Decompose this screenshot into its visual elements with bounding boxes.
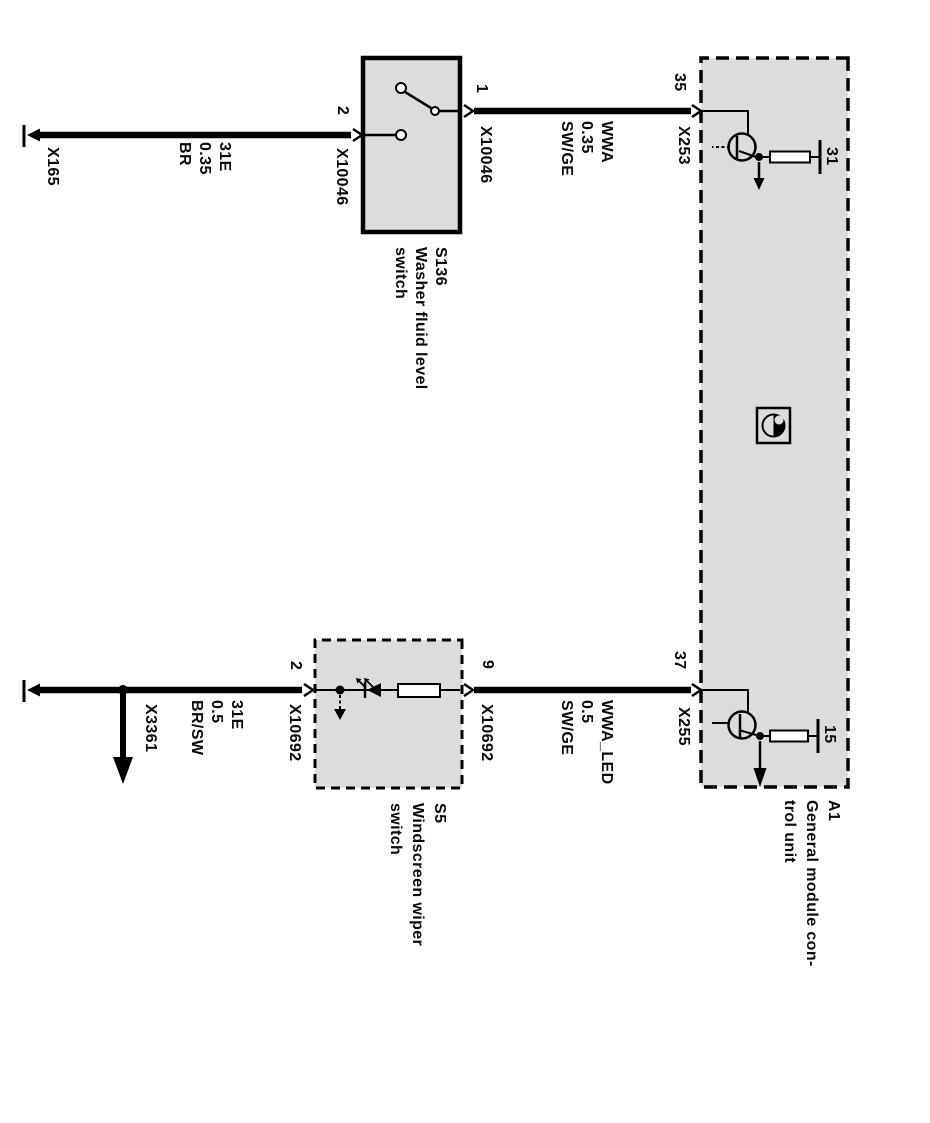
connector-label-x10692-upper: X10692 [477, 704, 495, 762]
connector-s5-pin2-icon [304, 684, 313, 696]
wire-circuit: 31E [214, 142, 234, 175]
ground-label-x165: X165 [43, 147, 61, 186]
component-ref: S5 [428, 803, 450, 946]
x3361-branch-arrow-icon [113, 757, 133, 784]
s136-contact-a [396, 130, 406, 140]
wire-gauge: 0.35 [576, 121, 596, 176]
wire-label-31e-brsw: 31E 0.5 BR/SW [186, 700, 246, 755]
wire-circuit: WWA_LED [596, 700, 616, 785]
pin-label-s5-2: 2 [286, 661, 304, 670]
pin-label-s136-2: 2 [333, 106, 351, 115]
wire-color: BR/SW [186, 700, 206, 755]
pin-label-s136-1: 1 [472, 84, 490, 93]
wire-circuit: 31E [226, 700, 246, 755]
wire-gauge: 0.35 [194, 142, 214, 175]
component-ref: A1 [822, 800, 844, 967]
component-label-s136: S136 Washer fluid level switch [390, 247, 450, 390]
wire-label-wwa-led: WWA_LED 0.5 SW/GE [556, 700, 616, 785]
a1-resistor-1 [770, 152, 810, 163]
component-label-s5: S5 Windscreen wiper switch [384, 803, 450, 946]
connector-label-x253: X253 [674, 126, 692, 165]
connector-label-x255: X255 [674, 707, 692, 746]
connector-label-x10046-lower: X10046 [332, 148, 350, 206]
component-name-line2: switch [384, 803, 406, 946]
x3361-end-arrow-icon [27, 684, 40, 697]
component-label-a1: A1 General module con- trol unit [778, 800, 844, 967]
connector-s136-pin1-icon [464, 105, 473, 117]
a1-junction-1 [755, 153, 763, 161]
pin-label-a1-37: 37 [670, 651, 688, 670]
pin-label-a1-35: 35 [670, 73, 688, 92]
ground-label-x3361: X3361 [141, 704, 159, 752]
component-name-line1: Washer fluid level [410, 247, 430, 390]
ground-x3361-symbol [24, 680, 133, 784]
wire-circuit: WWA [596, 121, 616, 176]
wire-gauge: 0.5 [576, 700, 596, 785]
diagram-stage: 2 1 35 37 9 2 31 15 X10046 X10046 X253 X… [0, 0, 930, 1123]
s136-switch-box [363, 58, 460, 232]
wire-color: SW/GE [556, 121, 576, 176]
wire-color: BR [174, 142, 194, 175]
wiring-diagram-page: 2 1 35 37 9 2 31 15 X10046 X10046 X253 X… [0, 0, 930, 1123]
connector-label-x10046-upper: X10046 [476, 126, 494, 184]
wire-gauge: 0.5 [206, 700, 226, 755]
s5-resistor [398, 684, 440, 697]
x165-arrow-icon [27, 129, 40, 142]
a1-resistor-2 [770, 731, 808, 742]
wire-label-31e-br: 31E 0.35 BR [174, 142, 234, 175]
a1-junction-2 [756, 732, 764, 740]
component-name-line2: switch [390, 247, 410, 390]
wire-label-wwa: WWA 0.35 SW/GE [556, 121, 616, 176]
ground-x165-symbol [24, 125, 40, 147]
wire-color: SW/GE [556, 700, 576, 785]
component-name-line2: trol unit [778, 800, 800, 967]
s136-contact-b [396, 83, 406, 93]
component-name-line1: Windscreen wiper [406, 803, 428, 946]
connector-s5-pin9-icon [464, 684, 473, 696]
component-ref: S136 [430, 247, 450, 390]
pin-label-s5-9: 9 [478, 660, 496, 669]
connector-label-x10692-lower: X10692 [285, 704, 303, 762]
component-name-line1: General module con- [800, 800, 822, 967]
control-unit-icon-notch [775, 416, 784, 425]
s5-junction-dot [336, 686, 345, 695]
terminal-label-31: 31 [822, 147, 840, 166]
connector-s136-pin2-icon [353, 129, 362, 141]
terminal-label-15: 15 [820, 725, 838, 744]
s136-pivot-contact [431, 107, 439, 115]
